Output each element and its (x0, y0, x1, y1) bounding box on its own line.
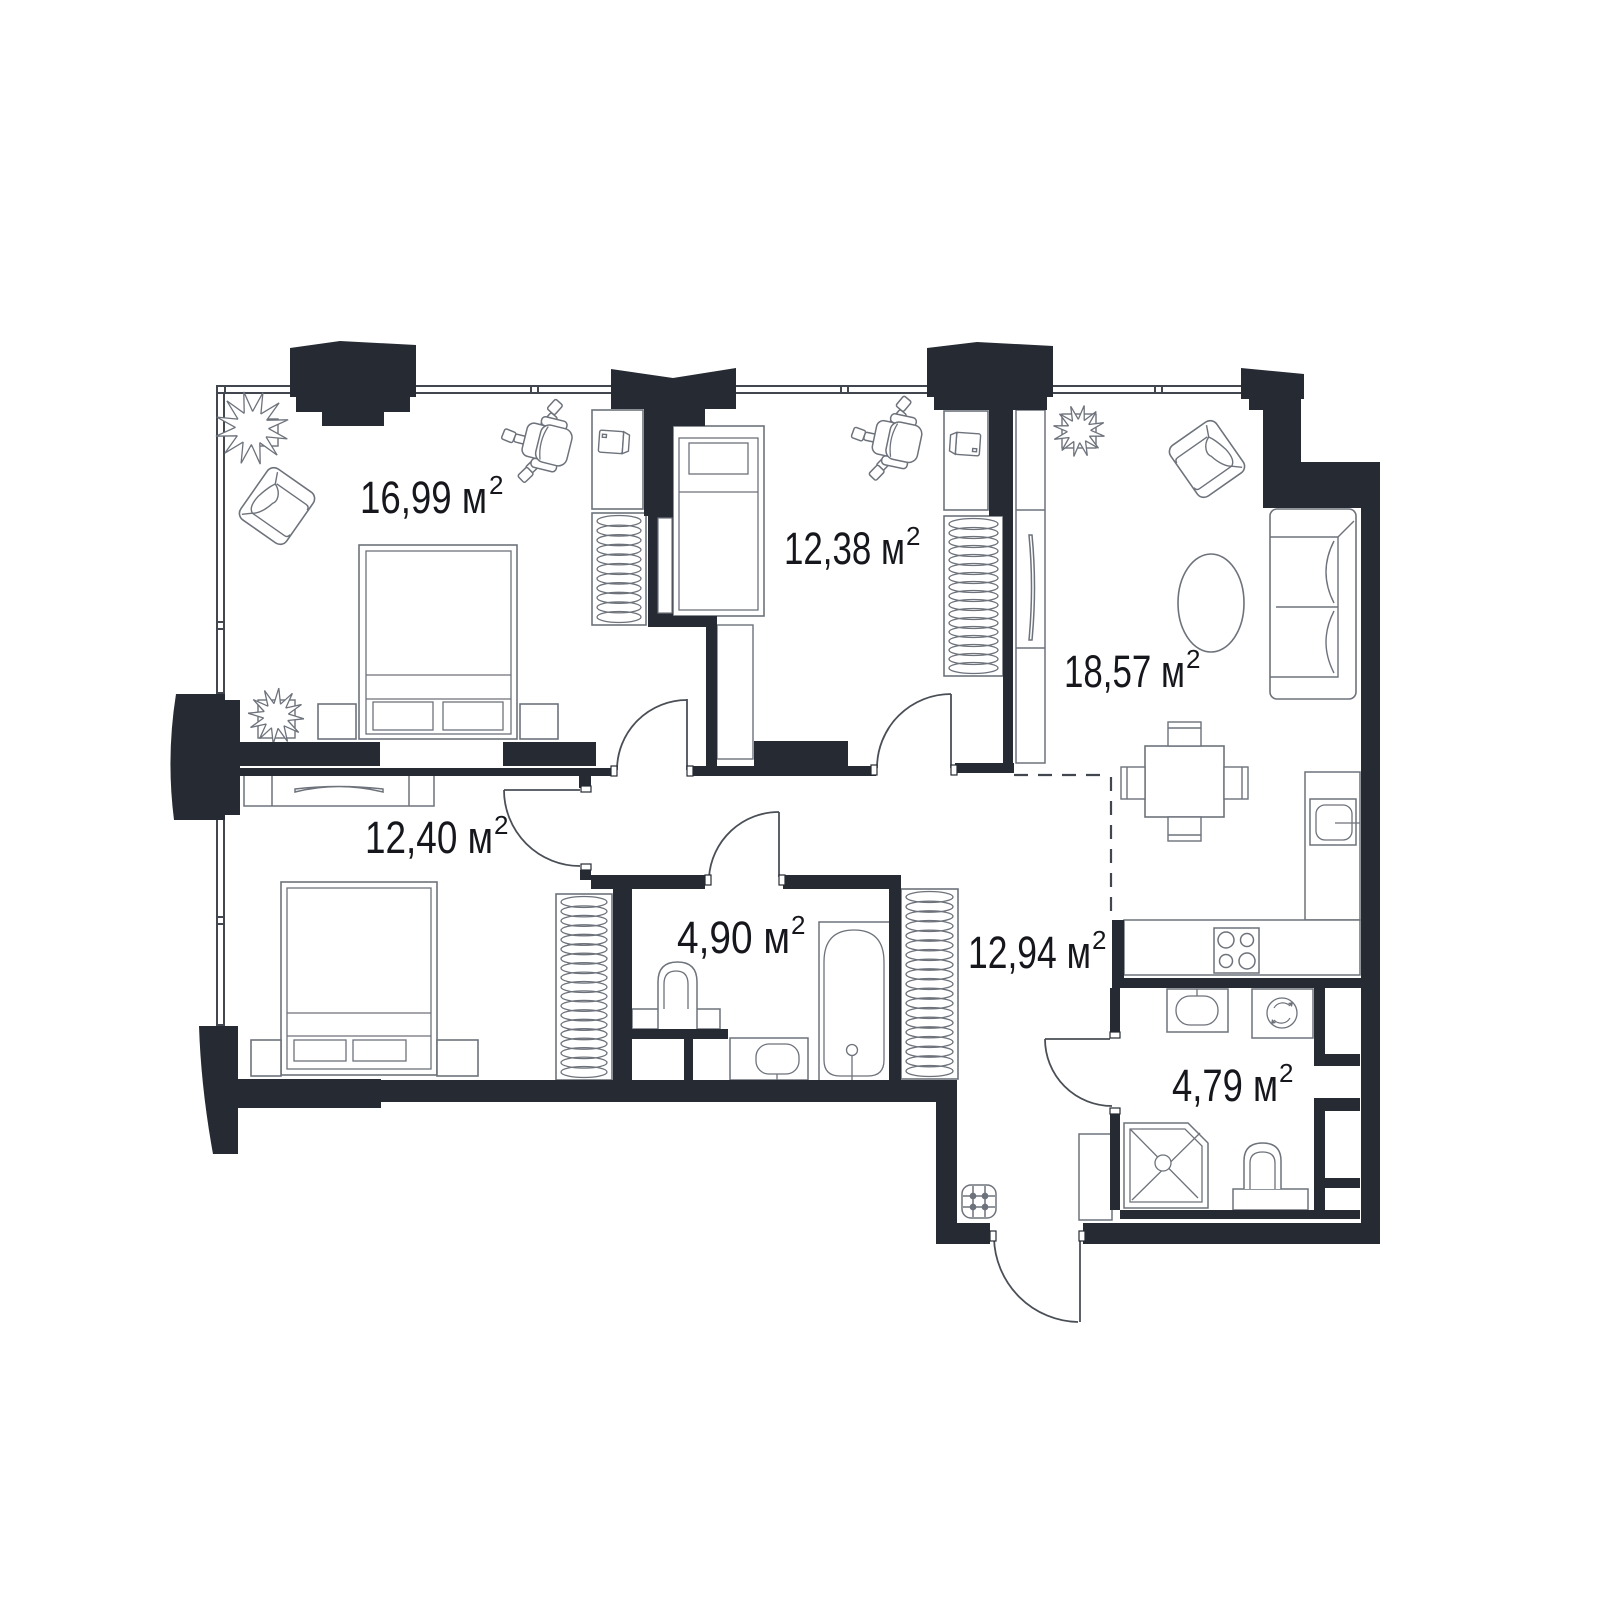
svg-text:2: 2 (1279, 1058, 1293, 1088)
svg-text:2: 2 (791, 910, 805, 940)
svg-text:2: 2 (1186, 644, 1200, 674)
svg-text:12,40 м: 12,40 м (365, 812, 493, 863)
svg-text:2: 2 (489, 470, 503, 500)
svg-text:4,79 м: 4,79 м (1172, 1060, 1278, 1111)
svg-text:2: 2 (1092, 925, 1106, 955)
svg-text:4,90 м: 4,90 м (677, 912, 790, 963)
svg-text:18,57 м: 18,57 м (1064, 646, 1185, 697)
svg-text:12,38 м: 12,38 м (784, 523, 905, 574)
svg-text:2: 2 (494, 810, 508, 840)
svg-text:12,94 м: 12,94 м (968, 927, 1091, 978)
svg-text:16,99 м: 16,99 м (360, 472, 487, 523)
svg-text:2: 2 (906, 521, 920, 551)
